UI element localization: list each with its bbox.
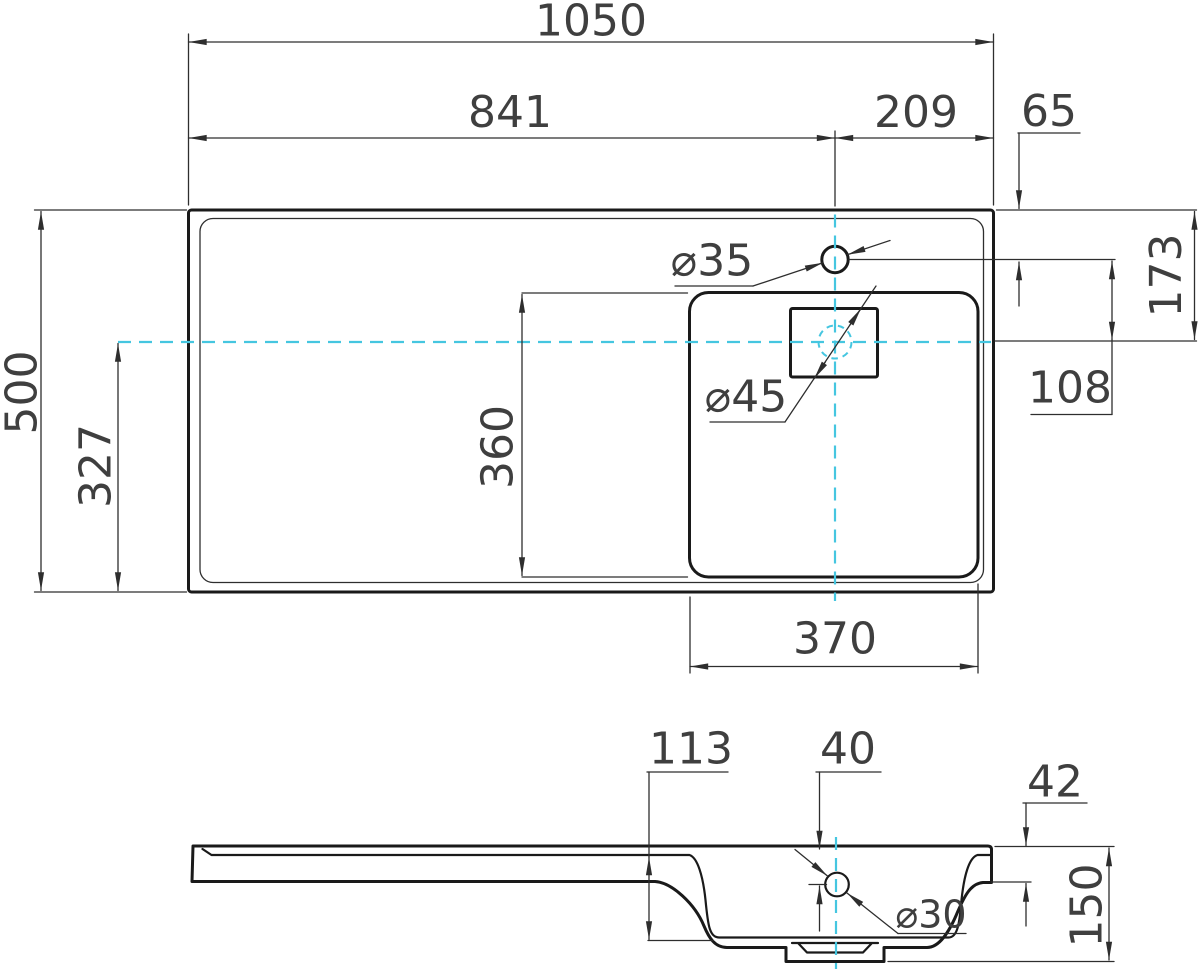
dim-faucet-from-left: 841 xyxy=(189,87,836,206)
dim-overflow-hole-diameter: ⌀30 xyxy=(795,850,967,937)
dim-label-faucet-from-left: 841 xyxy=(468,87,552,138)
dim-label-overall-width: 1050 xyxy=(535,0,647,47)
sink-dimension-drawing: 1050 841 209 65 173 xyxy=(0,0,1198,973)
sink-technical-drawing-page: 1050 841 209 65 173 xyxy=(0,0,1198,973)
top-view: 1050 841 209 65 173 xyxy=(0,0,1197,673)
dim-label-overflow-center-from-top: 40 xyxy=(820,724,876,775)
dim-faucet-offset-from-back: 65 xyxy=(1018,86,1080,306)
dim-label-basin-inner-width: 370 xyxy=(793,614,877,665)
deck-surface-and-basin-inner-line xyxy=(203,849,992,938)
dim-faucet-to-drain: 108 xyxy=(1028,261,1112,415)
dim-overall-width: 1050 xyxy=(189,0,994,205)
dim-faucet-hole-diameter: ⌀35 xyxy=(671,236,890,287)
dim-basin-inner-length: 360 xyxy=(473,293,688,577)
dim-label-drain-hole-diameter: ⌀45 xyxy=(705,372,787,423)
dim-basin-depth: 113 xyxy=(647,724,733,941)
dim-label-drain-axis-from-front: 327 xyxy=(71,424,122,508)
dim-label-faucet-hole-diameter: ⌀35 xyxy=(671,236,753,287)
dim-label-overall-depth: 500 xyxy=(0,351,48,435)
dim-label-overall-height: 150 xyxy=(1062,864,1113,948)
dim-overflow-center-from-top: 40 xyxy=(816,724,881,932)
countertop-outline xyxy=(189,210,994,592)
dim-label-drain-axis-from-back: 173 xyxy=(1141,234,1192,318)
dim-label-overflow-hole-diameter: ⌀30 xyxy=(895,893,966,937)
dim-label-faucet-offset-from-back: 65 xyxy=(1021,86,1077,137)
dim-drain-axis-from-back: 173 xyxy=(995,210,1197,341)
dim-faucet-from-right: 209 xyxy=(835,87,994,138)
basin-outline xyxy=(690,293,979,578)
dim-label-faucet-to-drain: 108 xyxy=(1028,363,1112,414)
side-view: 113 40 42 150 ⌀30 xyxy=(192,724,1114,970)
dim-label-deck-thickness: 42 xyxy=(1027,757,1083,808)
dim-drain-axis-from-front: 327 xyxy=(71,344,122,591)
dim-label-faucet-from-right: 209 xyxy=(874,87,958,138)
dim-overall-depth: 500 xyxy=(0,210,187,592)
dim-label-basin-inner-length: 360 xyxy=(473,405,524,489)
dim-label-basin-depth: 113 xyxy=(649,724,733,775)
countertop-inner-rim xyxy=(200,219,984,583)
